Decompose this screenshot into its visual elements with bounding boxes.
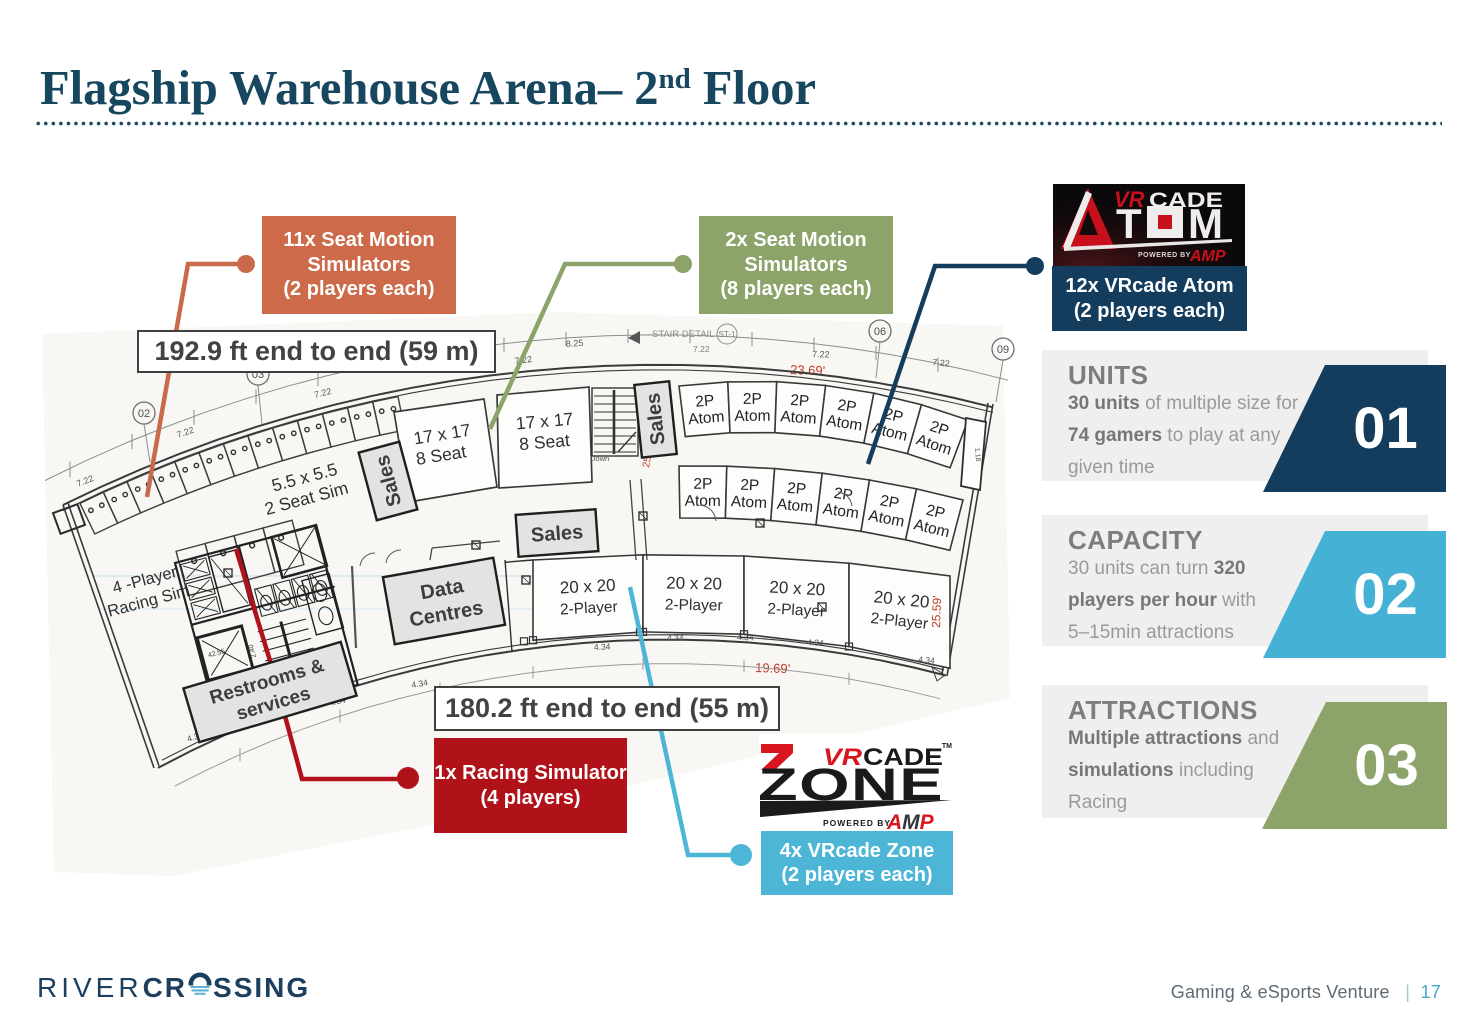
svg-text:25.59': 25.59' <box>929 595 944 628</box>
svg-text:AMP: AMP <box>886 811 935 829</box>
svg-text:02: 02 <box>138 408 150 420</box>
svg-text:T: T <box>1116 200 1142 247</box>
svg-text:POWERED BY: POWERED BY <box>823 818 891 828</box>
svg-text:2P: 2P <box>790 392 810 410</box>
svg-text:Sales: Sales <box>530 521 584 547</box>
svg-text:Atom: Atom <box>685 493 721 510</box>
svg-text:STAIR DETAIL: STAIR DETAIL <box>652 329 714 340</box>
svg-text:20 x 20: 20 x 20 <box>666 574 722 594</box>
svg-text:7.22: 7.22 <box>932 357 950 369</box>
svg-text:4.34: 4.34 <box>918 654 936 666</box>
svg-text:2-Player: 2-Player <box>767 600 826 620</box>
svg-text:2P: 2P <box>693 476 712 493</box>
svg-text:4.34: 4.34 <box>667 633 684 643</box>
svg-text:2P: 2P <box>740 477 760 495</box>
svg-text:23.69': 23.69' <box>790 362 826 378</box>
svg-text:4.34: 4.34 <box>807 637 824 648</box>
svg-text:8.25: 8.25 <box>565 338 583 349</box>
svg-text:2-Player: 2-Player <box>665 596 723 614</box>
svg-text:4.34: 4.34 <box>594 641 611 652</box>
svg-text:09: 09 <box>997 344 1009 356</box>
svg-text:20 x 20: 20 x 20 <box>769 578 826 600</box>
svg-text:Atom: Atom <box>780 408 817 428</box>
svg-text:Atom: Atom <box>776 496 814 516</box>
svg-text:1.18: 1.18 <box>973 448 981 462</box>
svg-text:Atom: Atom <box>730 493 767 512</box>
svg-text:7.22: 7.22 <box>812 349 830 360</box>
svg-text:2-Player: 2-Player <box>560 598 619 618</box>
svg-text:TM: TM <box>942 743 952 750</box>
svg-text:AMP: AMP <box>1189 248 1226 265</box>
svg-text:20 x 20: 20 x 20 <box>559 576 616 598</box>
svg-text:ST-1: ST-1 <box>719 330 736 339</box>
svg-text:06: 06 <box>874 326 886 338</box>
svg-text:2P: 2P <box>786 480 807 499</box>
svg-text:2P: 2P <box>743 391 762 408</box>
svg-text:Down: Down <box>590 454 609 463</box>
svg-text:POWERED BY: POWERED BY <box>1138 252 1191 259</box>
svg-text:2P: 2P <box>695 392 715 411</box>
svg-text:Atom: Atom <box>688 408 725 428</box>
svg-text:7.22: 7.22 <box>693 344 710 354</box>
svg-text:Atom: Atom <box>734 408 770 425</box>
